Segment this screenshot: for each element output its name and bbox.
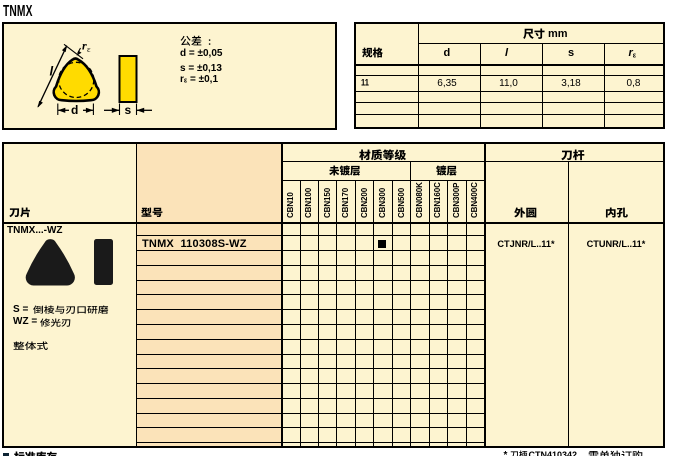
svg-text:ε: ε — [87, 44, 91, 54]
svg-text:s: s — [125, 103, 132, 117]
svg-text:d: d — [71, 103, 78, 117]
svg-text:l: l — [50, 64, 54, 79]
